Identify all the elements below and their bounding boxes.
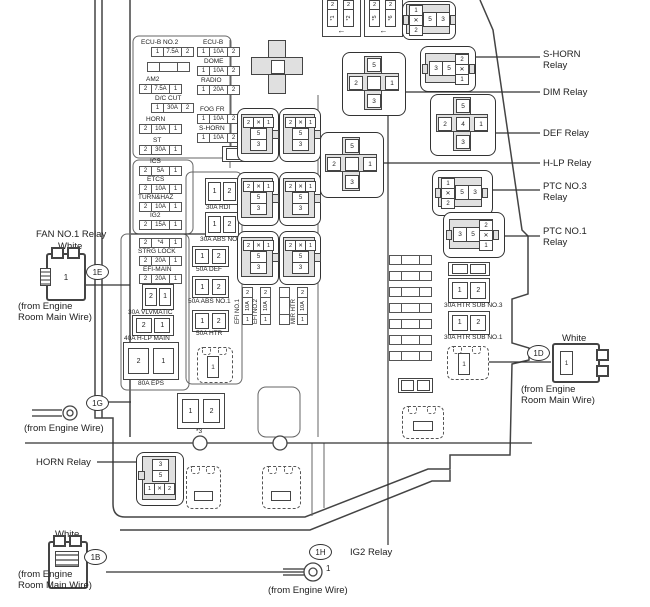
fuse-label-efi-main: EFI-MAIN (143, 267, 172, 274)
dashed-connector-bottom-2 (262, 466, 301, 509)
fusible-link-5: 2*5 (369, 0, 380, 27)
connector-pin-number: 1 (48, 255, 84, 299)
relay-vertical-3: 2✕153 (241, 178, 273, 218)
fuse-label-dome: DOME (204, 59, 224, 66)
fuse-label-s-horn: S-HORN (199, 126, 225, 133)
connector-1e: 1 (46, 253, 86, 301)
relay-vertical-4: 2✕153 (283, 178, 315, 218)
fuse-blank-right (390, 351, 432, 361)
fuse-efi-main: 220A1 (140, 274, 182, 284)
relay-ptc-no1: 35 2✕1 (449, 219, 493, 249)
connector-pin: 1 (207, 356, 219, 378)
fuse-label-radio: RADIO (201, 78, 222, 85)
tag-1d: 1D (527, 345, 550, 361)
fuse-50a-htr: 12 (192, 310, 229, 332)
fuse-blank-right (390, 303, 432, 313)
link-label: *5 (372, 15, 378, 20)
callout-1b-source: (from Engine Room Main Wire) (18, 569, 92, 592)
fusible-link-group-1: 2*1 2*2 ← (322, 0, 361, 37)
fuse-dc-cut: 130A2 (152, 103, 194, 113)
fuse-ecu-b: 110A2 (198, 47, 240, 57)
fuse-st: 230A1 (140, 145, 182, 155)
fuse-label-efi-no2: EFI NO.2 (253, 299, 259, 324)
relay-vertical-5: 2✕153 (241, 237, 273, 277)
callout-ptc-no1-relay: PTC NO.1 Relay (543, 226, 587, 249)
dashed-connector-right: 1 (447, 346, 489, 380)
dashed-connector-bottom-right (402, 406, 444, 439)
relay-unlabeled-cross (251, 40, 303, 94)
callout-horn-relay: HORN Relay (36, 457, 91, 468)
callout-ig2-relay: IG2 Relay (350, 547, 392, 558)
callout-1e-source: (from Engine Room Main Wire) (18, 301, 92, 324)
fuse-label-80a-eps: 80A EPS (138, 381, 164, 388)
fuse-50a-def: 12 (192, 246, 229, 267)
tag-1e: 1E (86, 264, 109, 280)
relay-dim: 5 2 1 3 (347, 56, 399, 110)
callout-ptc-no3-relay: PTC NO.3 Relay (543, 181, 587, 204)
connector-slot (413, 421, 433, 431)
fuse-strg-lock: 220A1 (140, 256, 182, 266)
fuse-label-strg-lock: STRG LOCK (138, 249, 176, 256)
fuse-blank-right (390, 287, 432, 297)
fuse-turn-haz: 210A1 (140, 202, 182, 212)
callout-def-relay: DEF Relay (543, 128, 589, 139)
blank-box-bottom (398, 378, 433, 393)
fuse-label-etcs: ETCS (147, 177, 164, 184)
fusible-link-group-2: 2*5 2*6 ← (364, 0, 403, 37)
arrow-icon: ← (323, 26, 360, 36)
fuse-label-st: ST (153, 138, 161, 145)
callout-dim-relay: DIM Relay (543, 87, 587, 98)
fusible-link-2: 2*2 (343, 0, 354, 27)
relay-vertical-6: 2✕153 (283, 237, 315, 277)
empty-slot-frame (258, 387, 300, 437)
fuse-blank-right (390, 255, 432, 265)
relay-def: 5 2 4 1 3 (436, 97, 488, 151)
arrow-icon: ← (365, 26, 402, 36)
fusible-link-6: 2*6 (385, 0, 396, 27)
link-label: *6 (388, 15, 394, 20)
relay-top: 1✕2 53 (406, 4, 450, 34)
fuse-ics: 25A1 (140, 166, 182, 176)
tag-1b: 1B (84, 549, 107, 565)
blank-box-right (448, 262, 490, 276)
link-label: *2 (346, 15, 352, 20)
relay-ptc-no3: 1✕2 53 (438, 177, 482, 207)
tag-1h: 1H (309, 544, 332, 560)
dashed-connector-mid: 1 (197, 347, 233, 383)
fuse-label-30a-htr-sub-no3: 30A HTR SUB NO.3 (444, 303, 503, 310)
tag-1g: 1G (86, 395, 109, 411)
callout-s-horn-relay: S-HORN Relay (543, 49, 580, 72)
fuse-30a-vlvmatic: 21 (142, 284, 174, 310)
fuse-label-dc-cut: D/C CUT (155, 96, 181, 103)
fuse-blank-right (390, 319, 432, 329)
callout-1h-pin: 1 (326, 564, 330, 574)
fuse-etcs: 210A1 (140, 184, 182, 194)
fuse-label-am2: AM2 (146, 77, 159, 84)
fuse-mir-htr: 210A1 (297, 288, 308, 325)
fuse-label-30a-rdi: 30A RDI (206, 205, 230, 212)
fuse-30a-htr-sub-no1: 12 (448, 311, 490, 335)
fuse-label-30a-htr-sub-no1: 30A HTR SUB NO.1 (444, 335, 503, 342)
connector-slot (194, 491, 213, 501)
fuse-50a-abs-no1: 12 (192, 276, 229, 298)
fuse-label-efi-no1: EFI NO.1 (235, 299, 241, 324)
fuse-label-turn-haz: TURN&HAZ (138, 195, 173, 202)
fuse-30a-htr-sub-no3: 12 (448, 278, 490, 303)
callout-1d-source: (from Engine Room Main Wire) (521, 384, 595, 407)
fuse-blank (148, 62, 190, 72)
dashed-connector-bottom-1 (186, 466, 221, 509)
fuse-label-ecu-b-no2: ECU-B NO.2 (141, 40, 178, 47)
fuse-star4: 2*41 (140, 238, 182, 248)
relay-h-lp: 5 2 1 3 (325, 137, 377, 191)
fuse-s-horn: 110A2 (198, 133, 240, 143)
fuse-star3: 12 (177, 393, 225, 429)
fuse-label-horn: HORN (146, 117, 165, 124)
link-label: *1 (330, 15, 336, 20)
fuse-label-50a-def: 50A DEF (196, 267, 222, 274)
connector-1d: 1 (552, 343, 600, 383)
relay-horn: 3 5 1✕2 (142, 456, 176, 500)
fuse-ig2: 215A1 (140, 220, 182, 230)
fuse-efi-no2: 210A1 (260, 288, 271, 325)
fuse-label-ics: ICS (150, 159, 161, 166)
relay-vertical-1: 2✕153 (241, 114, 273, 154)
relay-s-horn: 35 2✕1 (425, 53, 469, 83)
connector-pin: 1 (458, 353, 470, 375)
fuse-am2: 27.5A1 (140, 84, 182, 94)
fuse-horn: 210A1 (140, 124, 182, 134)
callout-h-lp-relay: H-LP Relay (543, 158, 591, 169)
callout-1h-source: (from Engine Wire) (268, 585, 348, 596)
fuse-label-50a-htr: 50A HTR (196, 331, 222, 338)
fuse-label-ig2: IG2 (150, 213, 160, 220)
fuse-30a-rdi: 12 (205, 178, 239, 205)
connector-slot (271, 491, 291, 501)
connector-pin: 1 (560, 351, 573, 375)
fusible-link-1: 2*1 (327, 0, 338, 27)
fuse-ecu-b-no2: 17.5A2 (152, 47, 194, 57)
fuse-blank-right (390, 271, 432, 281)
fuse-30a-abs-no2: 12 (205, 212, 239, 237)
fuse-label-fog-fr: FOG FR (200, 107, 225, 114)
fuse-fog-fr: 110A2 (198, 114, 240, 124)
fuse-40a-hlp-main: 21 (132, 315, 174, 336)
fuse-label-star3: *3 (196, 429, 202, 436)
fuse-blank-right (390, 335, 432, 345)
bolt-1g-shaft (32, 410, 62, 416)
fuse-vertical-blank (279, 288, 290, 325)
harness-bolt-hole-right (273, 436, 287, 450)
relay-vertical-2: 2✕153 (283, 114, 315, 154)
harness-bolt-hole-left (193, 436, 207, 450)
fuse-efi-no1: 210A1 (242, 288, 253, 325)
callout-1g-source: (from Engine Wire) (24, 423, 104, 434)
fuse-label-ecu-b: ECU-B (203, 40, 223, 47)
fuse-radio: 120A2 (198, 85, 240, 95)
relay-center-pin (271, 60, 285, 74)
fuse-box-diagram: 2*1 2*2 ← 2*5 2*6 ← ECU-B NO.2 17.5A2 EC… (0, 0, 650, 607)
callout-fan-no1-relay: FAN NO.1 Relay (36, 229, 106, 240)
fuse-label-50a-abs-no1: 50A ABS NO.1 (188, 299, 231, 306)
fuse-dome: 110A2 (198, 66, 240, 76)
fuse-80a-eps: 21 (123, 342, 179, 380)
